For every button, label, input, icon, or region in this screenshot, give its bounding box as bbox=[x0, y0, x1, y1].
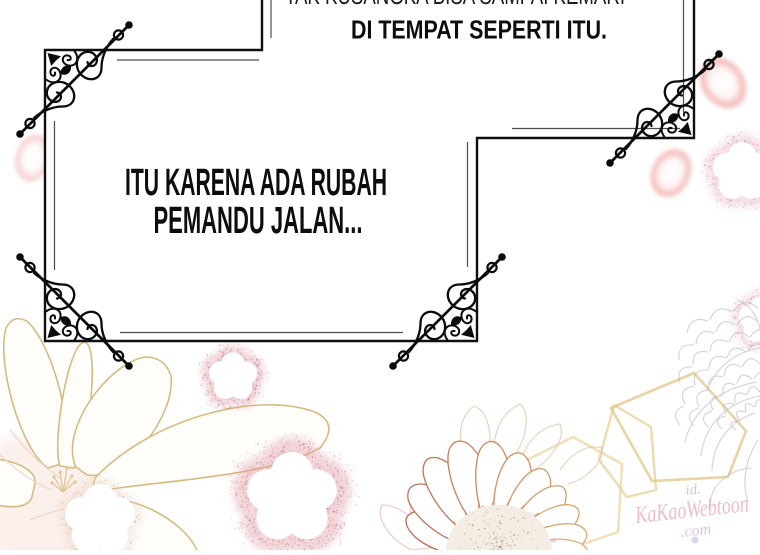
svg-text:PEMANDU JALAN...: PEMANDU JALAN... bbox=[154, 200, 363, 242]
svg-text:TAK KUSANGKA BISA SAMPAI KEMAR: TAK KUSANGKA BISA SAMPAI KEMARI bbox=[285, 0, 625, 10]
svg-text:ITU KARENA ADA RUBAH: ITU KARENA ADA RUBAH bbox=[125, 162, 387, 204]
svg-text:DI TEMPAT SEPERTI ITU.: DI TEMPAT SEPERTI ITU. bbox=[351, 15, 607, 45]
